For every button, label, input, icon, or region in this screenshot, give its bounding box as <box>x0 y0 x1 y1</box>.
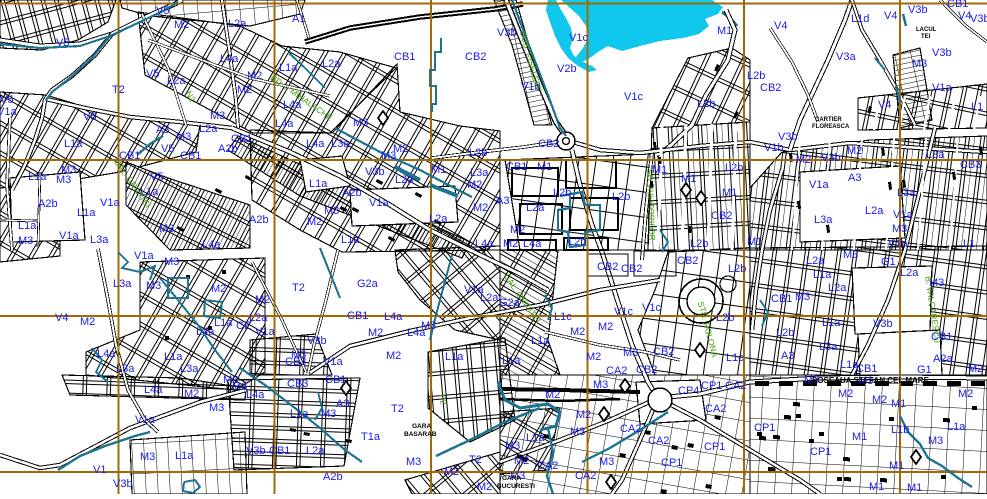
svg-text:L1: L1 <box>971 101 983 113</box>
svg-text:M3: M3 <box>928 435 943 447</box>
svg-text:CB1: CB1 <box>347 310 368 322</box>
svg-text:M2: M2 <box>477 481 492 493</box>
svg-text:L1a: L1a <box>164 351 183 363</box>
svg-text:M3: M3 <box>209 402 224 414</box>
svg-text:V5: V5 <box>156 5 169 17</box>
svg-text:V1a: V1a <box>323 356 343 368</box>
svg-text:V2b: V2b <box>557 63 577 75</box>
svg-text:L2a: L2a <box>526 202 545 214</box>
svg-text:L2b: L2b <box>469 147 487 159</box>
svg-text:V1c: V1c <box>642 302 661 314</box>
svg-text:GARA: GARA <box>502 475 521 482</box>
svg-text:L3a: L3a <box>897 187 916 199</box>
svg-text:SOSEAUA STEFAN CEL MARE: SOSEAUA STEFAN CEL MARE <box>812 376 930 385</box>
svg-text:V4: V4 <box>55 312 68 324</box>
svg-text:L2a: L2a <box>228 18 247 30</box>
svg-text:A1: A1 <box>292 13 305 25</box>
svg-text:V3b: V3b <box>873 318 893 330</box>
svg-text:L4a: L4a <box>246 389 265 401</box>
svg-text:L1a: L1a <box>290 408 309 420</box>
svg-text:L1a: L1a <box>502 355 521 367</box>
svg-text:M2: M2 <box>586 351 601 363</box>
svg-text:M3: M3 <box>795 291 810 303</box>
svg-text:M2: M2 <box>510 224 525 236</box>
svg-text:L4a: L4a <box>196 326 215 338</box>
svg-text:V1a: V1a <box>932 82 952 94</box>
svg-text:A2b: A2b <box>342 187 362 199</box>
svg-text:V3b: V3b <box>307 335 327 347</box>
svg-text:L1b: L1b <box>891 424 909 436</box>
svg-text:M2: M2 <box>80 316 95 328</box>
svg-text:CB1: CB1 <box>771 293 792 305</box>
svg-text:CA2: CA2 <box>575 470 596 482</box>
svg-text:L1a: L1a <box>947 421 966 433</box>
svg-text:BUCURESTI: BUCURESTI <box>497 483 535 490</box>
svg-text:M2: M2 <box>958 388 973 400</box>
svg-text:V3b: V3b <box>821 152 841 164</box>
svg-text:L3a: L3a <box>819 341 838 353</box>
svg-text:V1a: V1a <box>255 326 275 338</box>
svg-text:M3: M3 <box>321 408 336 420</box>
svg-text:L2a: L2a <box>322 58 341 70</box>
svg-text:CB2: CB2 <box>711 210 732 222</box>
svg-text:LACUL: LACUL <box>916 27 937 33</box>
svg-text:L2a: L2a <box>199 123 218 135</box>
svg-text:L1a: L1a <box>822 317 841 329</box>
svg-text:L4a: L4a <box>275 118 294 130</box>
svg-text:M3: M3 <box>421 320 436 332</box>
svg-text:CB2: CB2 <box>760 82 781 94</box>
svg-text:A3: A3 <box>496 195 509 207</box>
svg-text:M3: M3 <box>164 256 179 268</box>
svg-text:L1c: L1c <box>726 352 744 364</box>
svg-text:M3: M3 <box>599 456 614 468</box>
svg-text:CB2: CB2 <box>636 364 657 376</box>
svg-text:A3: A3 <box>336 398 349 410</box>
svg-text:G2a: G2a <box>357 278 379 290</box>
svg-text:L3a: L3a <box>90 234 109 246</box>
svg-text:L3a: L3a <box>814 214 833 226</box>
svg-text:M1: M1 <box>431 164 446 176</box>
svg-text:V1a: V1a <box>59 230 79 242</box>
svg-text:L1a: L1a <box>77 207 96 219</box>
svg-text:L1a: L1a <box>214 317 233 329</box>
svg-text:V4: V4 <box>884 10 897 22</box>
svg-text:V1a: V1a <box>0 106 17 118</box>
svg-text:CA2: CA2 <box>705 403 726 415</box>
svg-text:V5: V5 <box>83 111 96 123</box>
svg-text:L2a: L2a <box>395 174 414 186</box>
svg-text:CARTIER: CARTIER <box>815 117 842 123</box>
svg-text:M2: M2 <box>576 409 591 421</box>
svg-text:M1: M1 <box>891 398 906 410</box>
svg-text:V3a: V3a <box>836 51 856 63</box>
svg-text:A2b: A2b <box>323 471 343 483</box>
svg-text:M1: M1 <box>722 187 737 199</box>
svg-text:L1a: L1a <box>341 234 360 246</box>
svg-text:CP1: CP1 <box>704 441 725 453</box>
svg-text:CP4: CP4 <box>678 385 699 397</box>
svg-text:M3: M3 <box>892 223 907 235</box>
svg-text:M2: M2 <box>174 19 189 31</box>
svg-text:M1: M1 <box>681 173 696 185</box>
svg-text:M3: M3 <box>176 131 191 143</box>
svg-text:L2b: L2b <box>553 187 571 199</box>
svg-text:L3a: L3a <box>470 167 489 179</box>
svg-text:M1: M1 <box>889 460 904 472</box>
svg-text:L2b: L2b <box>725 162 743 174</box>
svg-text:CB1: CB1 <box>180 150 201 162</box>
svg-text:CB2: CB2 <box>677 255 698 267</box>
svg-text:L2a: L2a <box>167 75 186 87</box>
svg-text:M3: M3 <box>593 379 608 391</box>
svg-text:CB2: CB2 <box>597 261 618 273</box>
svg-text:CA2: CA2 <box>537 460 558 472</box>
svg-text:L1a: L1a <box>18 220 37 232</box>
svg-text:L2a: L2a <box>480 292 499 304</box>
svg-text:M1: M1 <box>717 25 732 37</box>
svg-text:M3: M3 <box>406 456 421 468</box>
svg-text:V1a: V1a <box>369 197 389 209</box>
svg-text:V5: V5 <box>150 171 163 183</box>
svg-text:M2: M2 <box>847 145 862 157</box>
svg-text:M2: M2 <box>968 363 983 375</box>
svg-text:L1c: L1c <box>554 311 572 323</box>
svg-text:M3: M3 <box>353 117 368 129</box>
svg-text:M2: M2 <box>386 350 401 362</box>
svg-text:M2: M2 <box>307 216 322 228</box>
svg-text:L4a: L4a <box>306 138 325 150</box>
svg-text:CB1: CB1 <box>231 133 252 145</box>
svg-text:T2: T2 <box>292 282 305 294</box>
svg-text:P2: P2 <box>437 393 449 405</box>
svg-text:BASARAB: BASARAB <box>404 431 437 438</box>
svg-text:M2: M2 <box>570 326 585 338</box>
svg-text:L1a: L1a <box>813 269 832 281</box>
svg-text:M1: M1 <box>869 481 884 493</box>
svg-text:M2: M2 <box>598 321 613 333</box>
svg-text:L4a: L4a <box>202 239 221 251</box>
svg-text:M2: M2 <box>444 466 459 478</box>
svg-text:M2: M2 <box>237 84 252 96</box>
svg-text:M2: M2 <box>545 389 560 401</box>
svg-text:V5: V5 <box>146 68 159 80</box>
svg-text:L4a: L4a <box>144 384 163 396</box>
svg-text:V3b: V3b <box>932 47 952 59</box>
svg-text:CB1: CB1 <box>947 0 968 10</box>
svg-text:L2b: L2b <box>568 236 586 248</box>
svg-text:M1: M1 <box>747 236 762 248</box>
svg-text:CP1: CP1 <box>754 422 775 434</box>
svg-text:L1: L1 <box>963 238 975 250</box>
svg-text:L2a: L2a <box>306 445 325 457</box>
svg-text:FLOREASCA: FLOREASCA <box>812 124 850 130</box>
svg-text:V1a: V1a <box>135 414 155 426</box>
svg-text:V4: V4 <box>774 20 787 32</box>
svg-text:M2: M2 <box>514 455 529 467</box>
svg-text:L1a: L1a <box>175 450 194 462</box>
svg-text:M2: M2 <box>473 202 488 214</box>
svg-text:A2b: A2b <box>249 214 269 226</box>
svg-text:T2: T2 <box>391 403 404 415</box>
svg-text:T1a: T1a <box>361 431 381 443</box>
svg-text:M2: M2 <box>467 179 482 191</box>
svg-text:CP1: CP1 <box>701 380 722 392</box>
svg-text:M3: M3 <box>381 150 396 162</box>
svg-text:L1a: L1a <box>64 138 83 150</box>
svg-text:TEI: TEI <box>921 34 931 40</box>
svg-text:CB2: CB2 <box>465 51 486 63</box>
svg-text:A2a: A2a <box>933 353 953 365</box>
svg-text:M2: M2 <box>255 294 270 306</box>
svg-text:L2b: L2b <box>728 263 746 275</box>
svg-text:L1a: L1a <box>279 62 298 74</box>
svg-text:V1c: V1c <box>614 306 633 318</box>
svg-text:CB1: CB1 <box>269 445 290 457</box>
svg-text:A2b: A2b <box>38 198 58 210</box>
svg-text:L2b: L2b <box>716 312 734 324</box>
svg-text:CB3: CB3 <box>960 159 981 171</box>
svg-text:GARA: GARA <box>412 423 431 430</box>
svg-text:M3: M3 <box>18 235 33 247</box>
svg-text:V1c: V1c <box>624 91 643 103</box>
svg-text:L1a: L1a <box>309 178 328 190</box>
svg-text:CA2: CA2 <box>648 435 669 447</box>
svg-text:A3: A3 <box>781 350 794 362</box>
svg-text:L4a: L4a <box>384 311 403 323</box>
svg-text:L2b: L2b <box>776 327 794 339</box>
svg-text:M3: M3 <box>232 381 247 393</box>
svg-text:G1: G1 <box>917 364 932 376</box>
svg-text:V1c: V1c <box>569 32 588 44</box>
svg-text:M3: M3 <box>570 426 585 438</box>
svg-text:V1a: V1a <box>893 209 913 221</box>
svg-text:L2a: L2a <box>429 213 448 225</box>
svg-text:CA2: CA2 <box>725 380 746 392</box>
svg-text:CB1: CB1 <box>506 161 527 173</box>
svg-text:V4: V4 <box>878 99 891 111</box>
svg-text:M3: M3 <box>140 451 155 463</box>
svg-text:L4a: L4a <box>475 238 494 250</box>
svg-text:L2a: L2a <box>828 282 847 294</box>
svg-text:M3: M3 <box>210 110 225 122</box>
svg-text:L3a: L3a <box>116 363 135 375</box>
svg-text:V3b: V3b <box>365 166 385 178</box>
svg-text:M2: M2 <box>503 238 518 250</box>
svg-text:T2: T2 <box>112 84 125 96</box>
svg-text:CP1: CP1 <box>661 457 682 469</box>
svg-text:M3: M3 <box>912 58 927 70</box>
svg-text:V3b: V3b <box>908 4 928 16</box>
svg-text:M2: M2 <box>247 70 262 82</box>
svg-text:M2: M2 <box>796 154 811 166</box>
svg-text:L1a: L1a <box>28 171 47 183</box>
svg-text:CB3: CB3 <box>285 356 306 368</box>
svg-text:L1a: L1a <box>445 351 464 363</box>
svg-text:L2a: L2a <box>806 255 825 267</box>
svg-text:G1: G1 <box>881 256 896 268</box>
svg-text:L2a: L2a <box>249 312 268 324</box>
svg-text:L2a: L2a <box>865 205 884 217</box>
svg-text:L4a: L4a <box>220 53 239 65</box>
svg-text:L3a: L3a <box>331 138 350 150</box>
svg-text:V3b: V3b <box>246 445 266 457</box>
svg-text:M3: M3 <box>623 347 638 359</box>
svg-text:L3a: L3a <box>113 278 132 290</box>
svg-text:V1a: V1a <box>134 250 154 262</box>
svg-text:A3: A3 <box>848 172 861 184</box>
svg-text:L3a: L3a <box>926 149 945 161</box>
svg-text:V3b: V3b <box>497 27 517 39</box>
svg-text:L2a: L2a <box>900 267 919 279</box>
svg-text:L3a: L3a <box>180 363 199 375</box>
svg-text:CB1: CB1 <box>394 51 415 63</box>
svg-text:V1a: V1a <box>888 238 908 250</box>
svg-text:M1: M1 <box>852 431 867 443</box>
svg-text:CB3: CB3 <box>287 378 308 390</box>
svg-text:V5: V5 <box>161 143 174 155</box>
svg-text:V3b: V3b <box>113 478 133 490</box>
svg-text:L2b: L2b <box>690 238 708 250</box>
svg-text:L4a: L4a <box>523 238 542 250</box>
svg-text:L2b: L2b <box>697 98 715 110</box>
svg-text:M3: M3 <box>324 205 339 217</box>
svg-text:M1: M1 <box>907 482 922 494</box>
svg-text:L2b: L2b <box>612 191 630 203</box>
svg-text:CB1: CB1 <box>325 374 346 386</box>
svg-text:M2: M2 <box>184 388 199 400</box>
svg-text:L1a: L1a <box>531 335 550 347</box>
svg-text:CB2: CB2 <box>653 346 674 358</box>
svg-text:V5: V5 <box>56 37 69 49</box>
svg-text:T2: T2 <box>469 454 482 466</box>
svg-text:M3: M3 <box>843 249 858 261</box>
svg-text:CB2: CB2 <box>621 263 642 275</box>
svg-text:M3: M3 <box>505 440 520 452</box>
svg-text:M2: M2 <box>872 394 887 406</box>
svg-text:L2b: L2b <box>747 70 765 82</box>
svg-text:V1a: V1a <box>809 179 829 191</box>
svg-text:M2: M2 <box>838 388 853 400</box>
svg-text:L1d: L1d <box>851 13 869 25</box>
svg-text:V5: V5 <box>0 94 13 106</box>
svg-text:L1a: L1a <box>526 432 545 444</box>
svg-text:M2: M2 <box>368 327 383 339</box>
svg-text:V3b: V3b <box>970 13 987 25</box>
svg-text:V1: V1 <box>93 464 106 476</box>
svg-text:M3: M3 <box>146 280 161 292</box>
svg-text:CA2: CA2 <box>606 365 627 377</box>
svg-text:CB2: CB2 <box>538 138 559 150</box>
svg-text:M2: M2 <box>211 283 226 295</box>
svg-text:V1b: V1b <box>764 142 784 154</box>
svg-text:CA2: CA2 <box>620 423 641 435</box>
svg-text:M3: M3 <box>56 174 71 186</box>
svg-text:M1: M1 <box>537 161 552 173</box>
svg-text:L4a: L4a <box>97 348 116 360</box>
svg-text:A3: A3 <box>156 124 169 136</box>
svg-text:CB1: CB1 <box>856 363 877 375</box>
svg-text:V1a: V1a <box>100 197 120 209</box>
svg-text:M3: M3 <box>159 223 174 235</box>
svg-text:CP1: CP1 <box>810 446 831 458</box>
